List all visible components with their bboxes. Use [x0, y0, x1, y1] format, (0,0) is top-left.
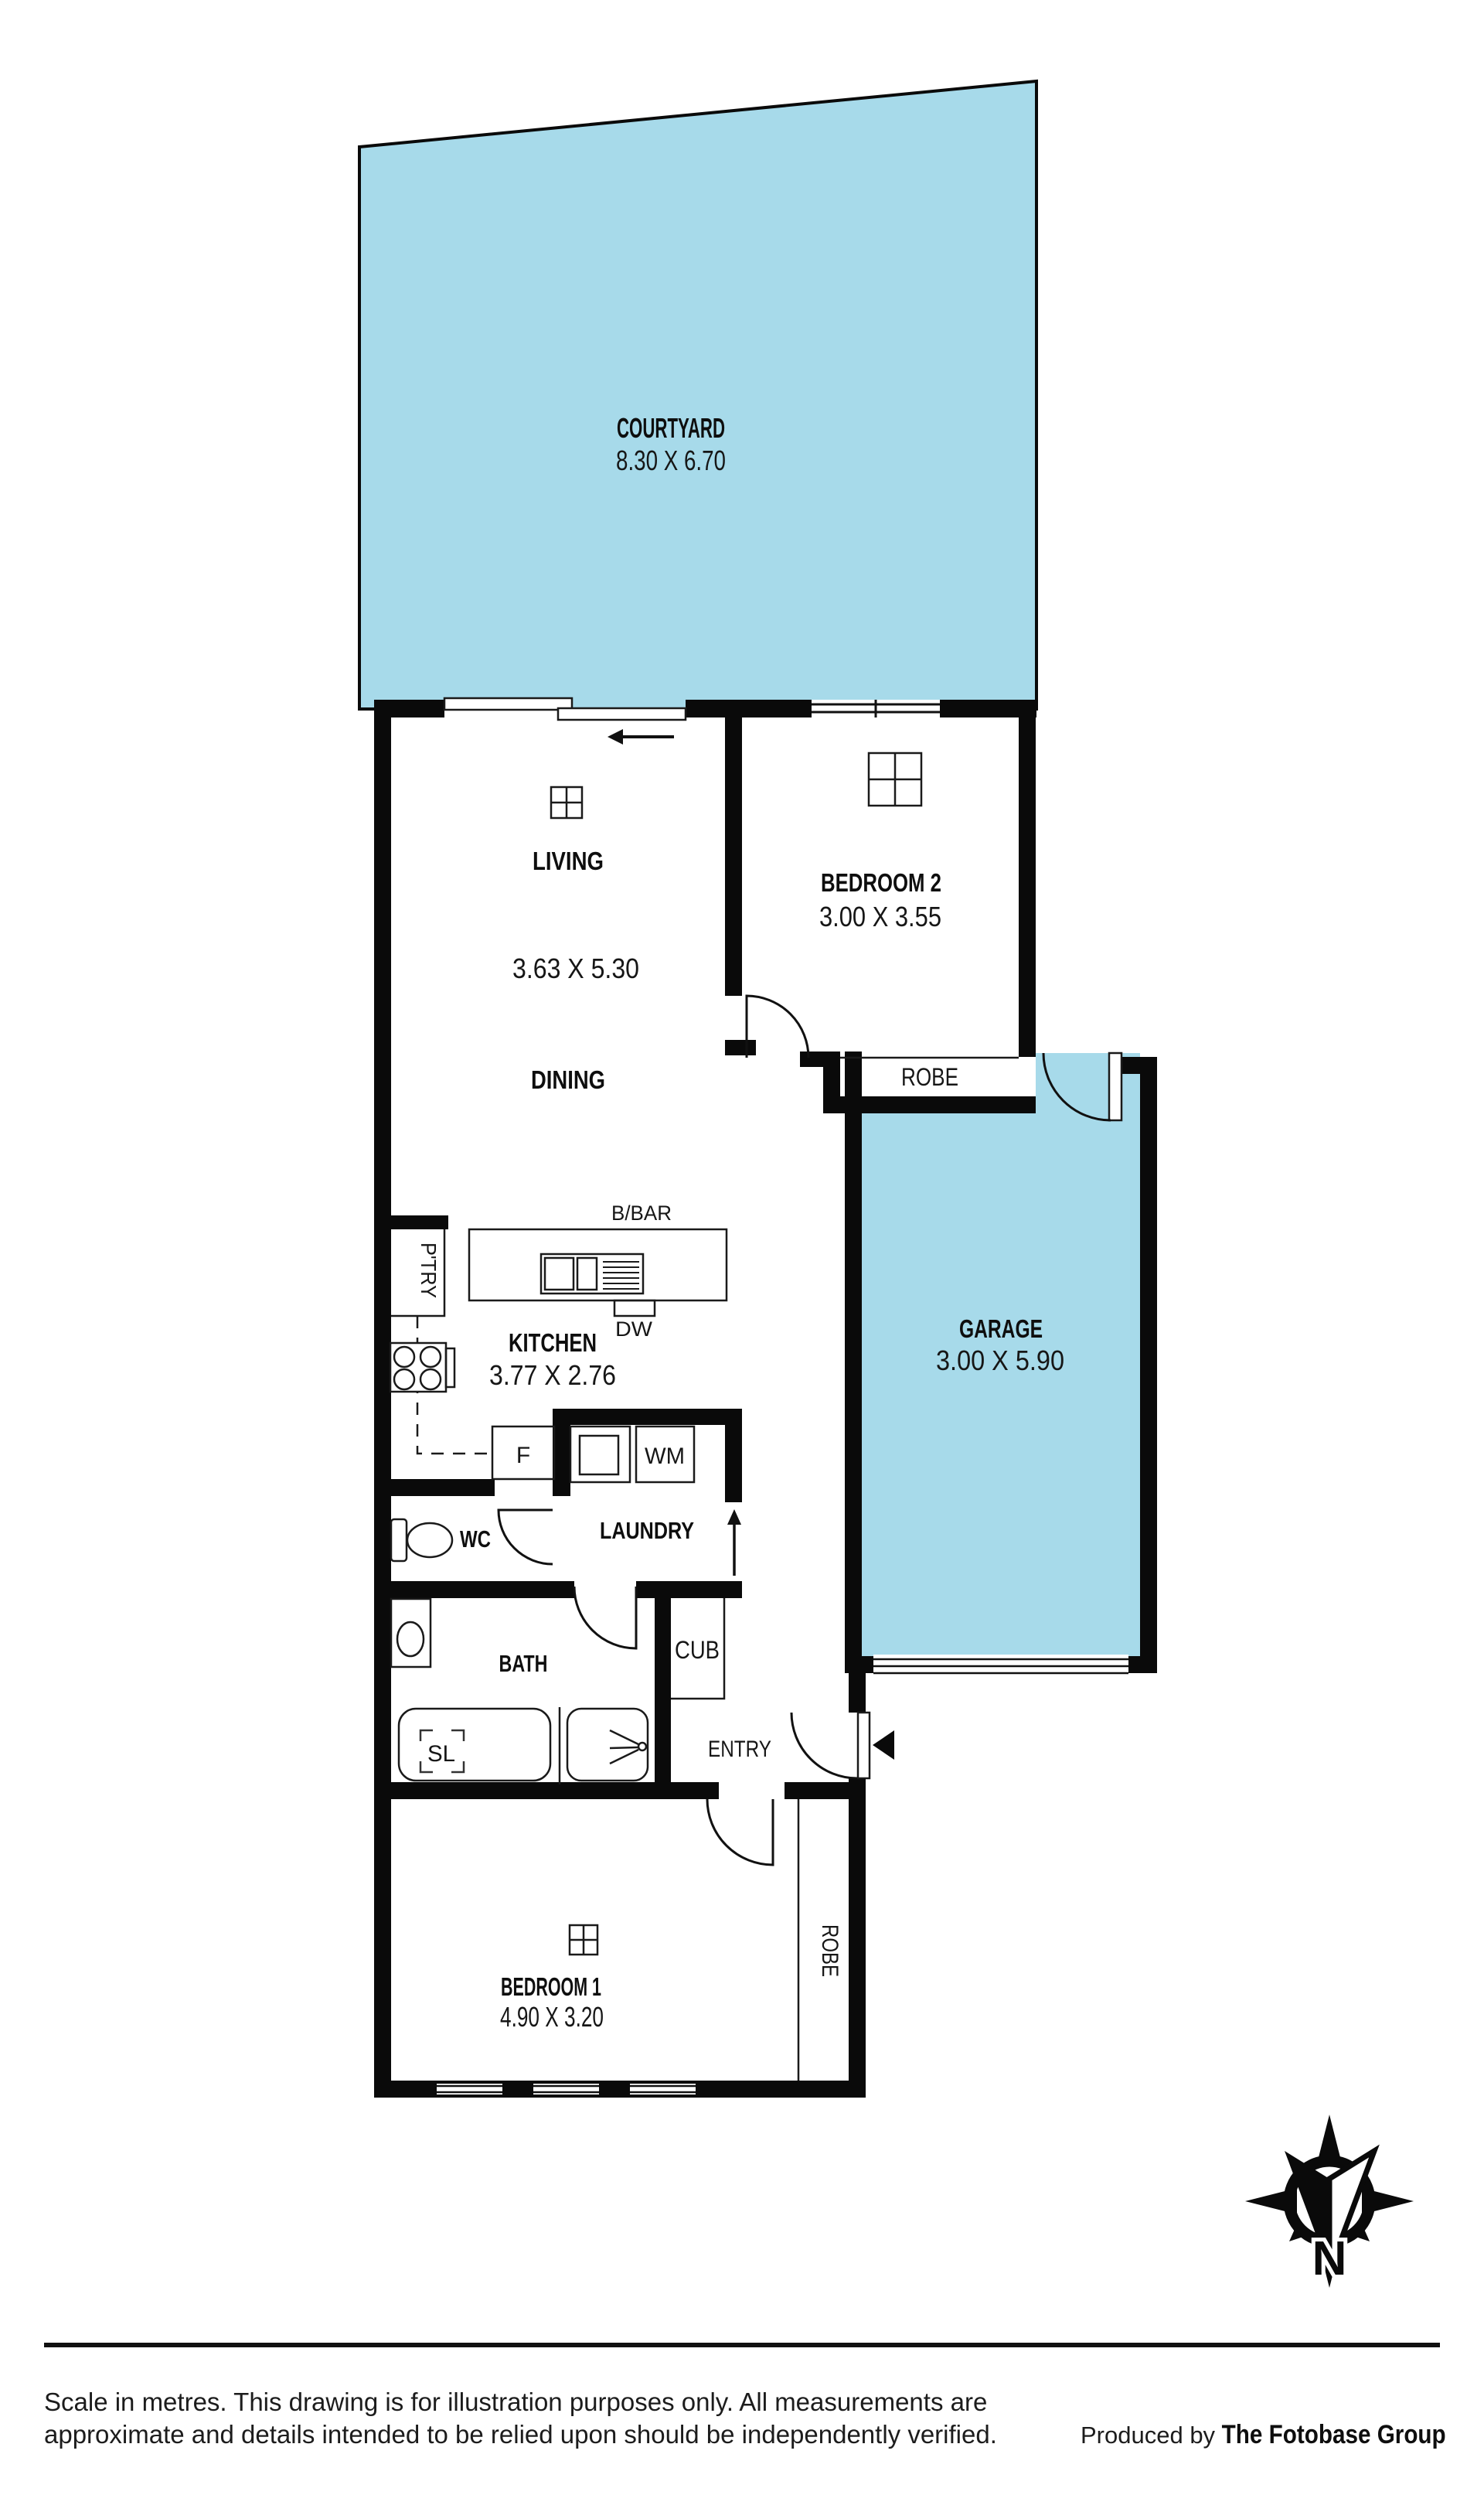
bedroom2-dims: 3.00 X 3.55	[819, 901, 941, 932]
disclaimer-line1: Scale in metres. This drawing is for ill…	[44, 2388, 987, 2416]
door-swing-wc	[499, 1510, 553, 1564]
fridge-label: F	[516, 1443, 530, 1468]
bedroom1-dims: 4.90 X 3.20	[500, 2001, 604, 2033]
pantry-label: P'TRY	[417, 1242, 441, 1298]
dining-label: DINING	[531, 1065, 605, 1094]
floorplan-canvas: COURTYARD 8.30 X 6.70	[0, 0, 1484, 2495]
ceiling-light-icon	[869, 753, 921, 806]
footer-rule	[44, 2343, 1440, 2347]
wc-label: WC	[460, 1525, 491, 1553]
wall-segment	[570, 1409, 742, 1425]
door-leaf-garage	[1109, 1053, 1122, 1120]
garage-label: GARAGE	[959, 1314, 1043, 1343]
breakfast-bar-island	[469, 1229, 727, 1316]
dw-label: DW	[615, 1317, 653, 1341]
door-swing-entry	[791, 1713, 857, 1778]
garage-region	[862, 1113, 1140, 1672]
wall-segment	[725, 1425, 742, 1502]
wall-segment	[374, 700, 391, 2098]
laundry-label: LAUNDRY	[600, 1517, 694, 1544]
cooktop-icon	[390, 1343, 454, 1392]
hall-arrowhead-icon	[727, 1509, 741, 1525]
sliding-door-panel	[444, 698, 572, 710]
courtyard-label: COURTYARD	[617, 412, 725, 444]
kitchen-label: KITCHEN	[509, 1328, 597, 1357]
ceiling-light-icon	[570, 1925, 597, 1955]
wall-segment	[374, 1782, 719, 1799]
garage-dims: 3.00 X 5.90	[936, 1345, 1064, 1376]
bedroom2-label: BEDROOM 2	[821, 868, 941, 897]
sl-label: SL	[427, 1741, 455, 1767]
courtyard-dims: 8.30 X 6.70	[616, 445, 726, 476]
wall-segment	[636, 1581, 742, 1598]
entry-label: ENTRY	[708, 1737, 771, 1762]
bedroom1-label: BEDROOM 1	[501, 1972, 601, 2001]
wall-segment	[725, 717, 742, 996]
wall-segment	[725, 1040, 756, 1055]
door-leaf-entry	[858, 1713, 870, 1778]
footer: Scale in metres. This drawing is for ill…	[44, 2343, 1446, 2449]
compass-icon: N	[1245, 2115, 1414, 2288]
credit-prefix: Produced by	[1081, 2422, 1222, 2449]
door-swing-bedroom1	[707, 1799, 773, 1865]
credit-line: Produced by The Fotobase Group	[1081, 2420, 1446, 2449]
courtyard-area: COURTYARD 8.30 X 6.70	[359, 81, 1036, 709]
robe1-label: ROBE	[817, 1924, 842, 1977]
compass-north-label: N	[1312, 2232, 1347, 2285]
wall-segment	[374, 1581, 574, 1598]
credit-name: The Fotobase Group	[1222, 2420, 1446, 2449]
toilet-icon	[391, 1519, 452, 1561]
cub-label: CUB	[675, 1636, 720, 1664]
wall-segment	[1019, 700, 1036, 1057]
wall-segment	[686, 700, 812, 717]
living-label: LIVING	[533, 847, 604, 875]
living-dims: 3.63 X 5.30	[512, 953, 639, 984]
laundry-tub-bowl	[580, 1436, 618, 1474]
wall-segment	[845, 1656, 873, 1673]
dishwasher-icon	[614, 1300, 655, 1316]
wall-segment	[849, 1673, 866, 1713]
wall-segment	[845, 1052, 862, 1672]
basin-icon	[391, 1599, 431, 1667]
slide-arrowhead-icon	[608, 729, 623, 745]
wall-segment	[553, 1409, 570, 1496]
wall-segment	[391, 1215, 448, 1229]
bath-label: BATH	[499, 1650, 548, 1677]
kitchen-dims: 3.77 X 2.76	[489, 1359, 616, 1391]
bathtub-icon	[399, 1709, 550, 1781]
courtyard-region	[359, 81, 1036, 709]
wall-segment	[1128, 1656, 1157, 1673]
shower-icon	[567, 1709, 648, 1781]
wm-label: WM	[645, 1443, 685, 1469]
wall-segment	[655, 1598, 671, 1786]
wall-segment	[1140, 1057, 1157, 1672]
bbar-label: B/BAR	[611, 1201, 672, 1225]
robe2-label: ROBE	[901, 1063, 958, 1091]
ceiling-light-icon	[551, 787, 582, 818]
wall-segment	[849, 1778, 866, 2098]
wall-segment	[800, 1052, 840, 1067]
sliding-door-panel	[558, 708, 686, 720]
disclaimer-line2: approximate and details intended to be r…	[44, 2420, 997, 2449]
door-swing-bath	[574, 1587, 636, 1648]
wall-segment	[374, 1479, 495, 1496]
entry-arrow-icon	[873, 1730, 894, 1760]
